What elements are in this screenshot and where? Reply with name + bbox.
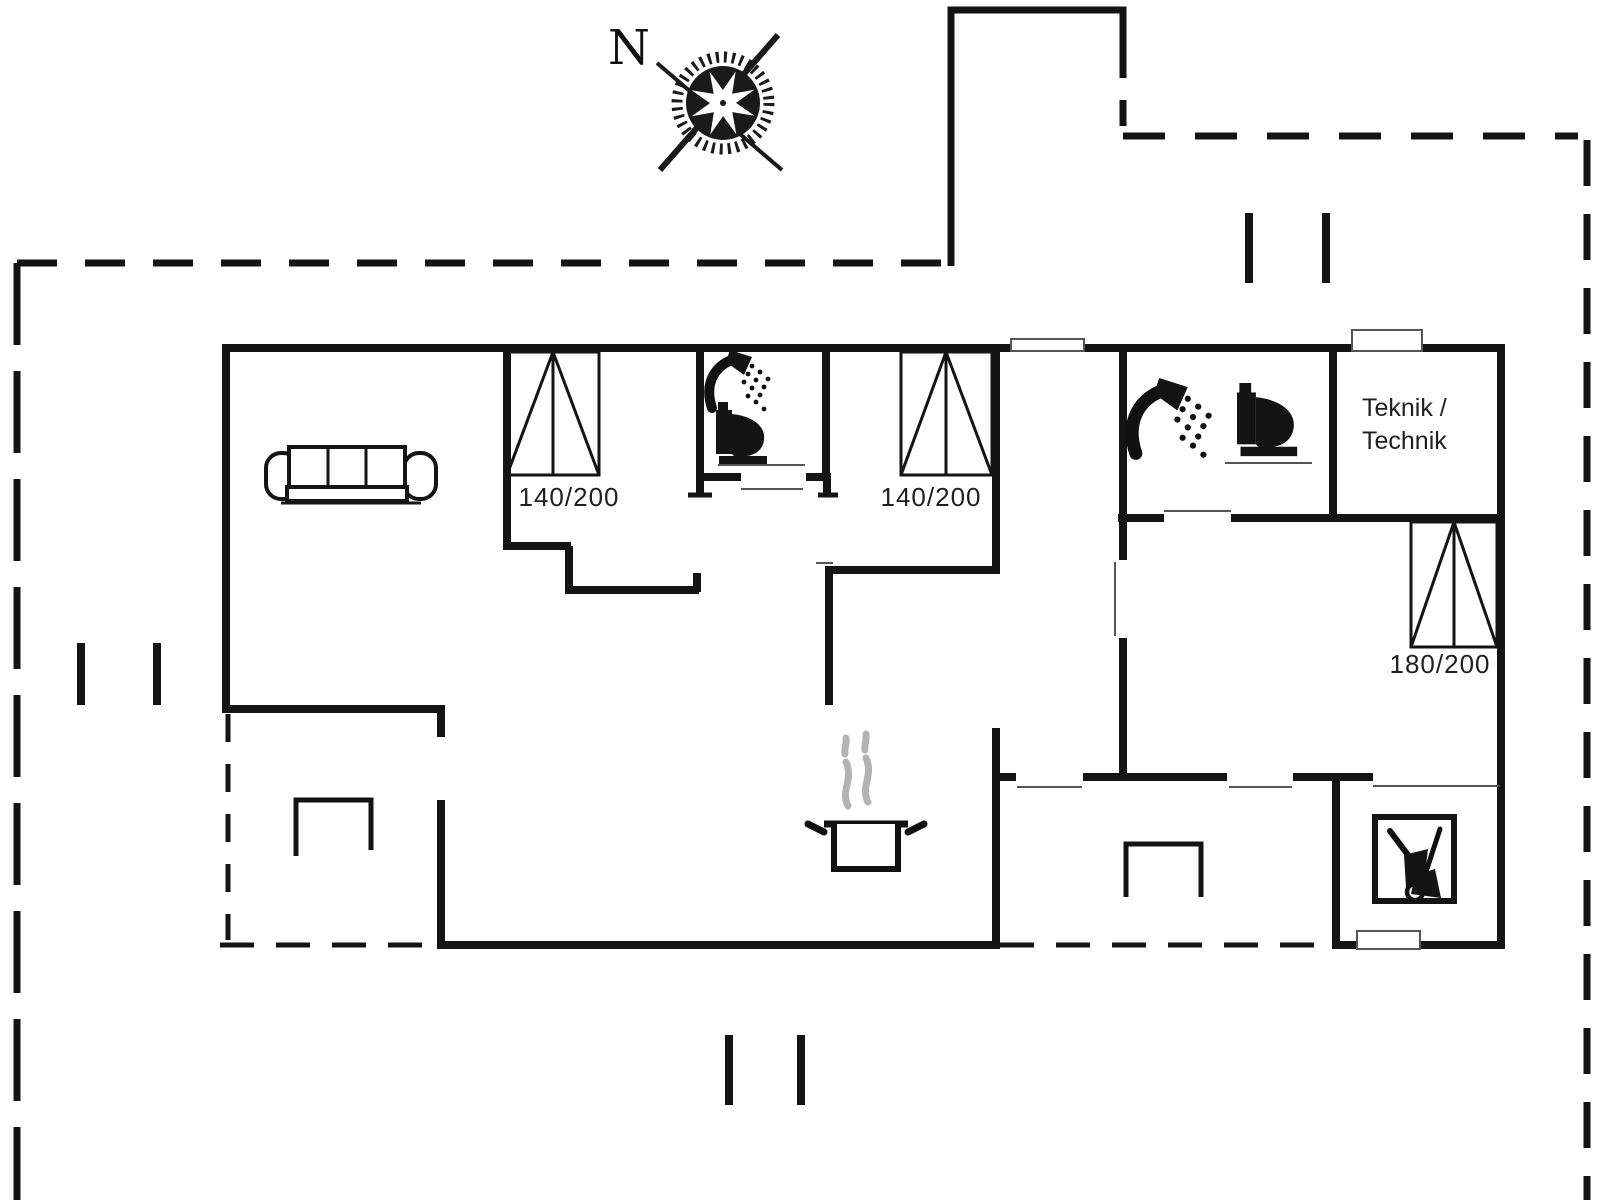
north-indicator: N	[608, 20, 782, 170]
toilet-icon	[1237, 383, 1297, 456]
sofa-icon	[266, 447, 436, 503]
terrace-bench-icon	[296, 800, 371, 856]
window-shed	[1357, 931, 1420, 949]
technical-room-line1: Teknik /	[1362, 394, 1447, 422]
garden-tools-icon	[1375, 817, 1454, 901]
technical-room-label: Teknik / Technik	[1362, 394, 1447, 455]
technical-room-line2: Technik	[1362, 427, 1447, 455]
cooking-pot-icon	[808, 734, 924, 869]
bed-size-label: 140/200	[519, 482, 620, 512]
window-technical-room	[1352, 330, 1422, 351]
terrace-dashed-edges	[220, 714, 1332, 945]
shower-icon	[1132, 378, 1212, 458]
bed-size-label: 180/200	[1390, 649, 1491, 679]
floor-plan: N	[0, 0, 1600, 1200]
compass-rose-icon	[657, 35, 782, 170]
door-thresholds	[718, 463, 1500, 787]
window-hall	[1011, 339, 1084, 351]
windows	[1011, 330, 1422, 949]
double-bed-icon	[507, 352, 599, 475]
terrace-bench-icon	[1126, 844, 1201, 897]
double-bed-icon	[1411, 522, 1497, 647]
double-bed-icon	[901, 352, 992, 475]
floor-plan-page: N	[0, 0, 1600, 1200]
bed-size-label: 140/200	[881, 482, 982, 512]
north-label: N	[608, 20, 650, 76]
plot-boundary	[17, 10, 1587, 1200]
toilet-icon	[716, 402, 767, 464]
